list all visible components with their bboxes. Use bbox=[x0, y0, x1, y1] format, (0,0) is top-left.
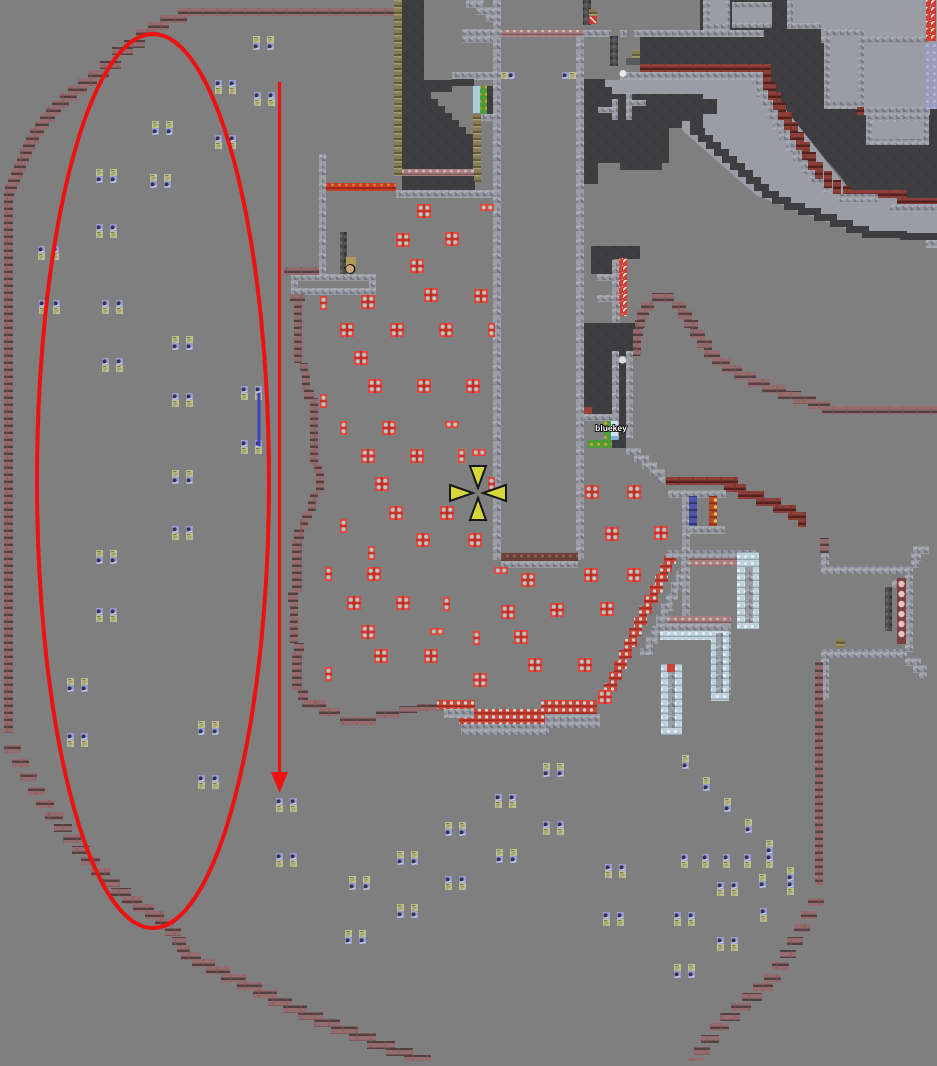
svg-text:bluekey: bluekey bbox=[595, 423, 627, 433]
